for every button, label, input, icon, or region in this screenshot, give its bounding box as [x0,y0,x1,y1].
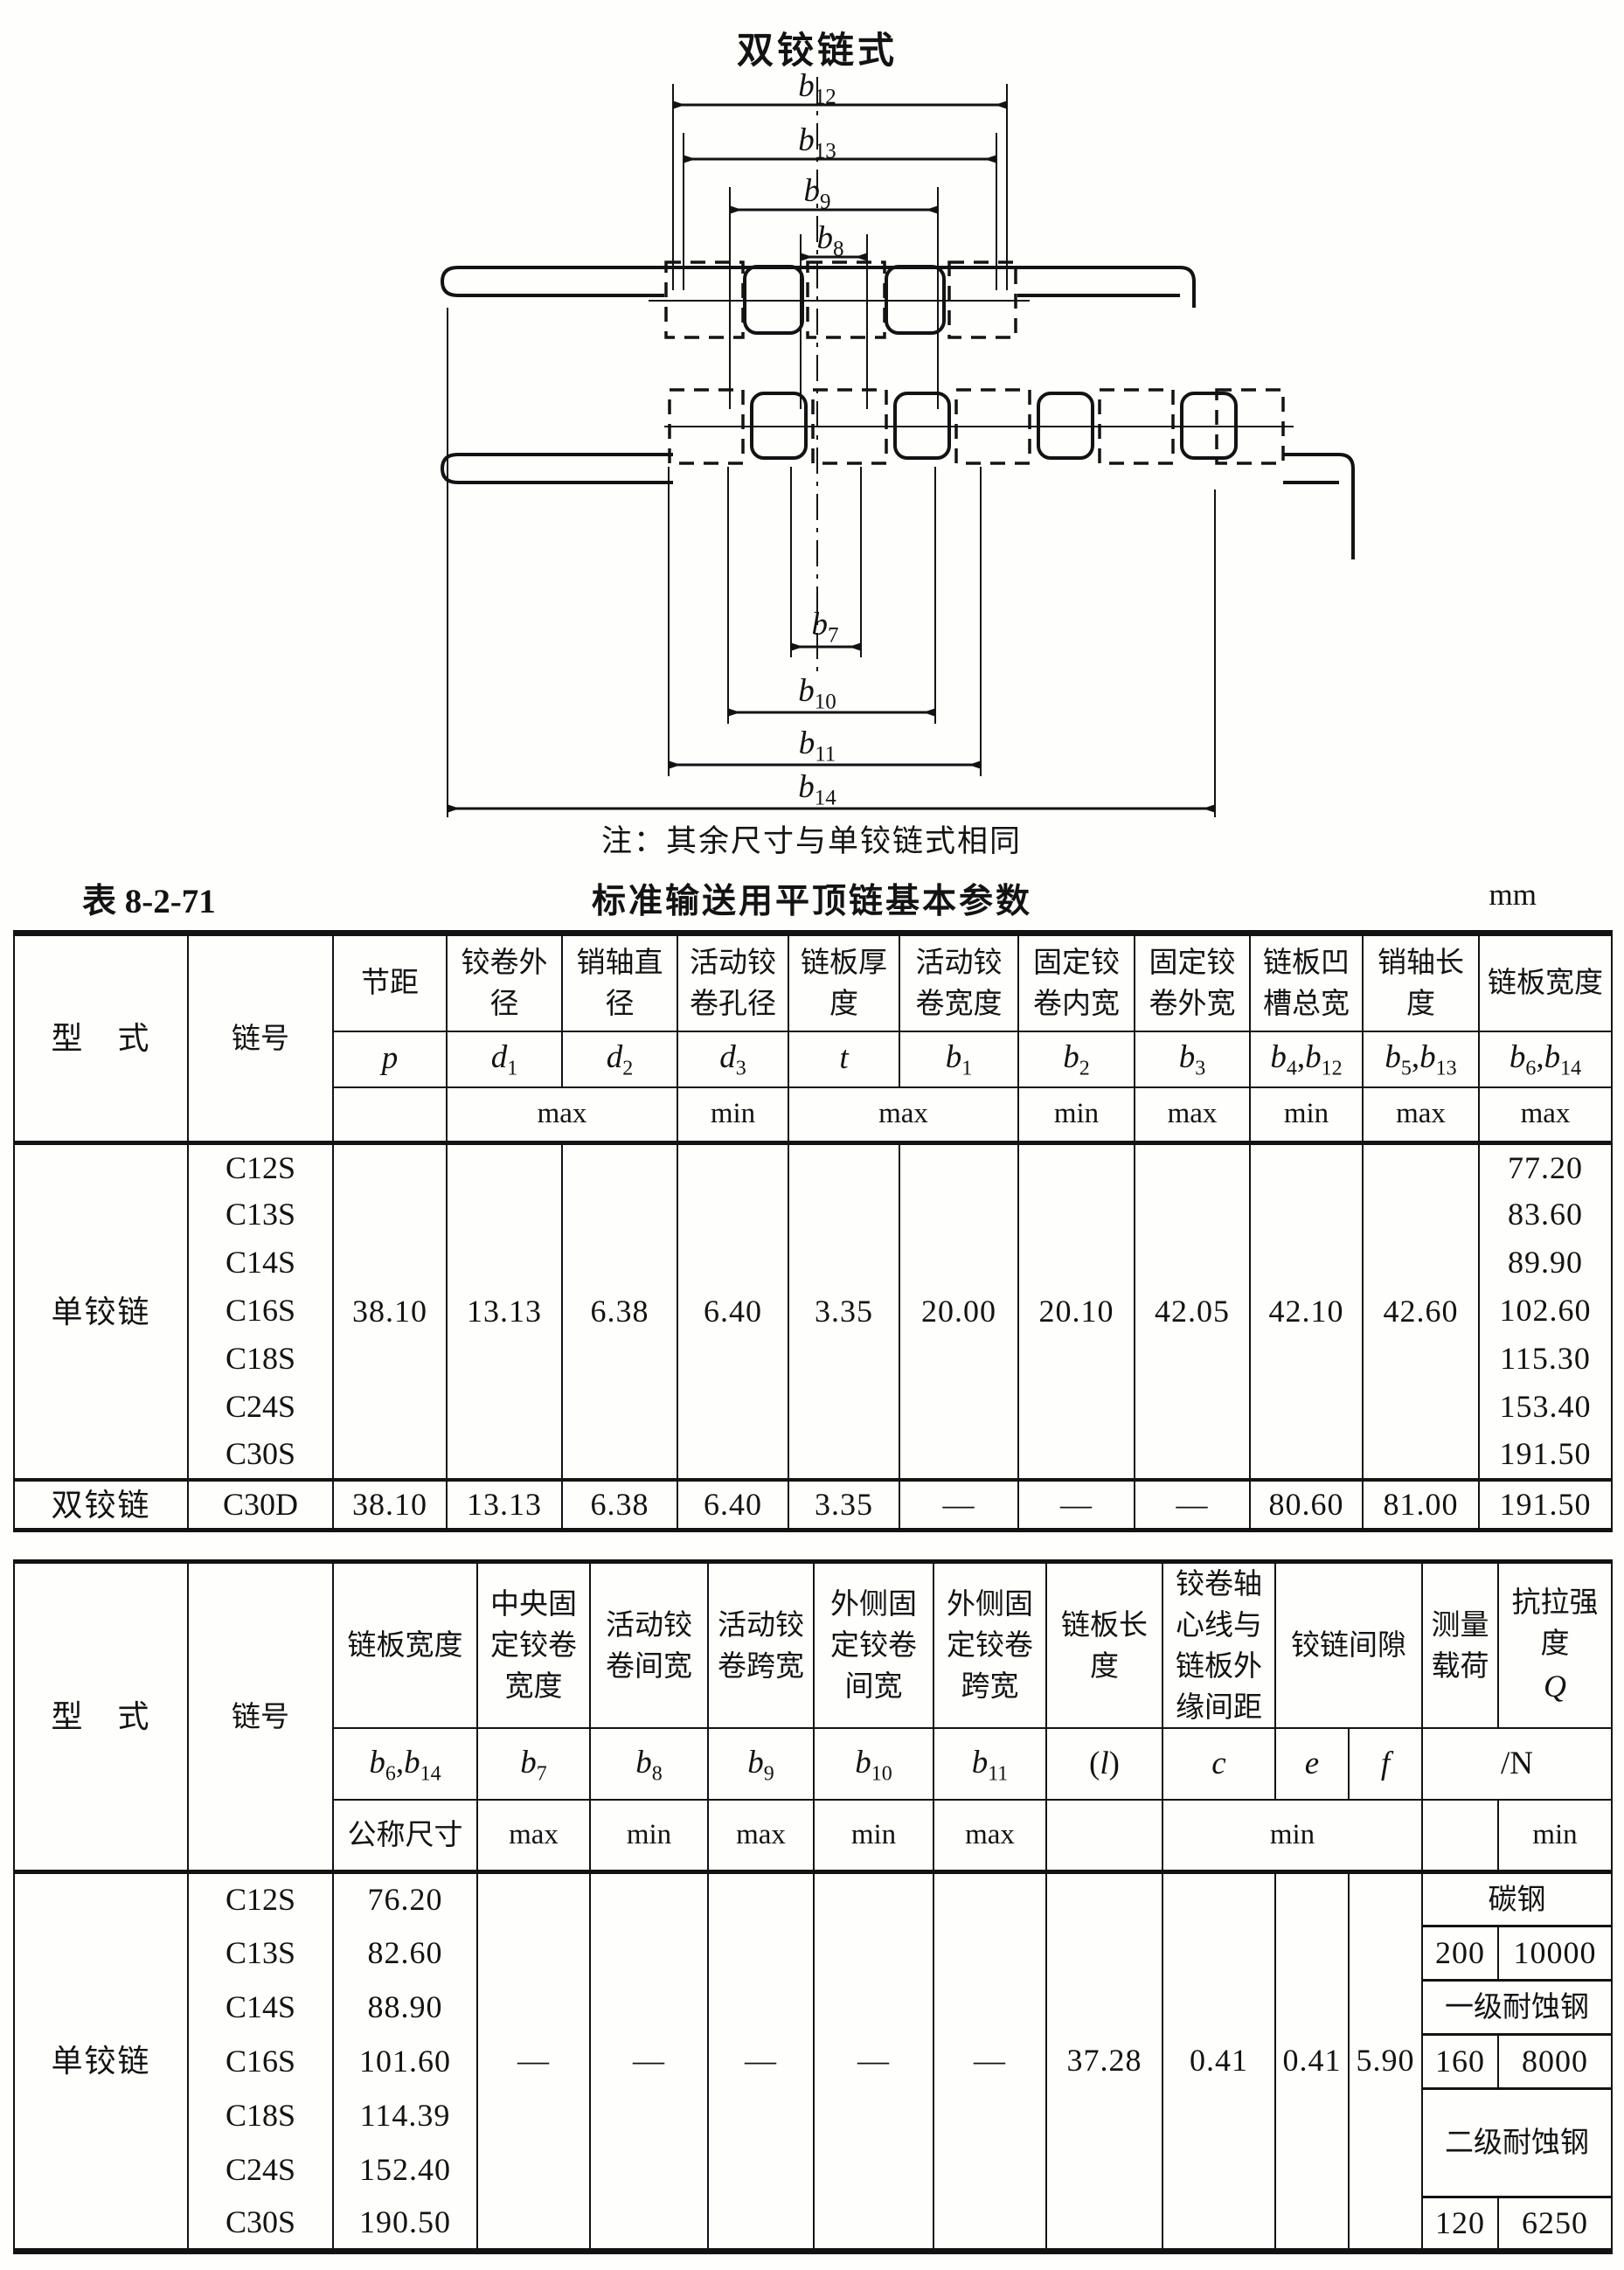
t2-sym-b9: b9 [708,1728,814,1800]
t2-head-outer-fixed-span: 外侧固定铰卷跨宽 [933,1562,1046,1729]
t1-d-p: 38.10 [333,1480,447,1531]
t1-sym-p: p [333,1031,447,1087]
t2-load-carbon: 200 [1422,1926,1498,1980]
t1-lim-p [333,1087,447,1143]
t2-q-carbon: 10000 [1498,1926,1612,1980]
t1-d-d3: 6.40 [677,1480,788,1531]
dim-label-b7: b7 [812,608,839,646]
t1-head-pitch: 节距 [333,934,447,1031]
figure-note: 注：其余尺寸与单铰链式相同 [601,816,1022,861]
t2-load-grade1: 160 [1422,2034,1498,2088]
t2-head-chainno: 链号 [188,1562,333,1872]
dim-label-b14: b14 [798,771,836,809]
t2-val-w: 101.60 [333,2034,477,2088]
t2-lim-b9: max [708,1800,814,1871]
t1-chainno: C12S [188,1143,333,1191]
t2-type-single: 单铰链 [14,1871,188,2251]
t1-d-b4b12: 80.60 [1250,1480,1363,1531]
t2-chainno: C12S [188,1871,333,1926]
t1-val-b4b12: 42.10 [1250,1143,1363,1480]
t2-val-w: 88.90 [333,1980,477,2034]
t1-d-b5b13: 81.00 [1363,1480,1479,1531]
table-unit: mm [1489,878,1537,913]
t1-sym-b1: b1 [899,1031,1018,1087]
t2-sym-c: c [1162,1728,1275,1800]
t2-head-type: 型 式 [14,1562,188,1872]
t2-head-plate-length: 链板长度 [1046,1562,1162,1729]
t1-lim-b2: min [1018,1087,1135,1143]
t1-head-type: 型 式 [14,934,188,1143]
t2-head-free-span: 活动铰卷跨宽 [708,1562,814,1729]
t2-head-outer-fixed-gap: 外侧固定铰卷间宽 [814,1562,933,1729]
t1-head-fixed-knuckle-inner: 固定铰卷内宽 [1018,934,1135,1031]
dim-label-b8: b8 [817,222,844,260]
table2-width-params: 型 式 链号 链板宽度 中央固定铰卷宽度 活动铰卷间宽 活动铰卷跨宽 外侧固定铰… [13,1559,1613,2254]
t1-val-w: 115.30 [1479,1336,1612,1384]
t1-val-w: 153.40 [1479,1384,1612,1432]
t1-sym-b3: b3 [1135,1031,1250,1087]
t2-lim-nominal: 公称尺寸 [333,1800,477,1871]
t1-d-b6b14: 191.50 [1479,1480,1612,1531]
t2-val-l: 37.28 [1046,1871,1162,2251]
table1-basic-params: 型 式 链号 节距 铰卷外径 销轴直径 活动铰卷孔径 链板厚度 活动铰卷宽度 固… [13,930,1613,1532]
handbook-page: 双铰链式 b12 b13 b9 b8 b7 b10 b11 b14 注：其余尺寸… [0,0,1624,2270]
dim-label-b9: b9 [804,175,831,212]
t1-chainno: C16S [188,1288,333,1336]
t1-sym-d1: d1 [447,1031,562,1087]
t1-sym-b5b13: b5,b13 [1363,1031,1479,1087]
t2-q-grade2: 6250 [1498,2197,1612,2251]
t2-val-w: 76.20 [333,1871,477,1926]
t2-steel-grade1: 一级耐蚀钢 [1422,1980,1612,2034]
t1-sym-t: t [788,1031,899,1087]
t1-head-plate-thickness: 链板厚度 [788,934,899,1031]
t2-chainno: C24S [188,2142,333,2197]
t1-lim-tb1: max [788,1087,1018,1143]
t2-lim-b10: min [814,1800,933,1871]
t2-val-f: 5.90 [1349,1871,1422,2251]
t1-lim-d3: min [677,1087,788,1143]
t1-lim-b6b14: max [1479,1087,1612,1143]
t1-val-t: 3.35 [788,1143,899,1480]
t2-chainno: C30S [188,2197,333,2251]
t2-val-w: 190.50 [333,2197,477,2251]
t1-val-d1: 13.13 [447,1143,562,1480]
t1-head-free-knuckle-width: 活动铰卷宽度 [899,934,1018,1031]
t2-chainno: C18S [188,2088,333,2142]
t1-type-single: 单铰链 [14,1143,188,1480]
t1-val-w: 191.50 [1479,1432,1612,1480]
t1-sym-b6b14: b6,b14 [1479,1031,1612,1087]
t2-val-b9: — [708,1871,814,2251]
t2-val-w: 152.40 [333,2142,477,2197]
t2-head-free-gap: 活动铰卷间宽 [590,1562,708,1729]
t1-head-free-knuckle-bore: 活动铰卷孔径 [677,934,788,1031]
dim-label-b12: b12 [798,70,836,108]
t1-sym-d2: d2 [562,1031,677,1087]
t2-load-grade2: 120 [1422,2197,1498,2251]
t1-head-chainno: 链号 [188,934,333,1143]
t1-val-b1: 20.00 [899,1143,1018,1480]
chain-diagram: 双铰链式 b12 b13 b9 b8 b7 b10 b11 b14 注：其余尺寸… [0,0,1624,870]
t1-val-w: 83.60 [1479,1191,1612,1239]
t2-lim-cef: min [1162,1800,1422,1871]
t2-sym-b10: b10 [814,1728,933,1800]
t1-chainno: C24S [188,1384,333,1432]
t2-q-grade1: 8000 [1498,2034,1612,2088]
t1-val-d2: 6.38 [562,1143,677,1480]
t1-head-pin-length: 销轴长度 [1363,934,1479,1031]
t1-val-b2: 20.10 [1018,1143,1135,1480]
t2-lim-b7: max [477,1800,590,1871]
t1-chainno: C30D [188,1480,333,1531]
figure-title: 双铰链式 [737,21,898,74]
t2-lim-b8: min [590,1800,708,1871]
table-caption: 表 8-2-71 标准输送用平顶链基本参数 mm [0,871,1624,920]
t2-sym-newton: /N [1422,1728,1612,1800]
t1-d-b2: — [1018,1480,1135,1531]
t2-val-b8: — [590,1871,708,2251]
t2-sym-e: e [1275,1728,1349,1800]
t1-sym-b2: b2 [1018,1031,1135,1087]
t1-val-b3: 42.05 [1135,1143,1250,1480]
t2-sym-b11: b11 [933,1728,1046,1800]
t2-head-axis-edge-dist: 铰卷轴心线与链板外缘间距 [1162,1562,1275,1729]
t1-sym-d3: d3 [677,1031,788,1087]
t2-chainno: C13S [188,1926,333,1980]
t1-val-d3: 6.40 [677,1143,788,1480]
t2-sym-b8: b8 [590,1728,708,1800]
t2-val-b11: — [933,1871,1046,2251]
t1-chainno: C30S [188,1432,333,1480]
t2-lim-load [1422,1800,1498,1871]
dim-label-b11: b11 [799,727,836,765]
t2-steel-grade2: 二级耐蚀钢 [1422,2088,1612,2197]
t2-val-b10: — [814,1871,933,2251]
t1-val-w: 89.90 [1479,1239,1612,1288]
t1-lim-d1d2: max [447,1087,677,1143]
t2-lim-q: min [1498,1800,1612,1871]
dim-label-b13: b13 [798,124,836,162]
t2-head-measure-load: 测量载荷 [1422,1562,1498,1729]
t1-val-w: 102.60 [1479,1288,1612,1336]
t1-lim-b4b12: min [1250,1087,1363,1143]
t1-d-b1: — [899,1480,1018,1531]
t1-chainno: C13S [188,1191,333,1239]
t1-lim-b3: max [1135,1087,1250,1143]
t1-val-w: 77.20 [1479,1143,1612,1191]
t2-val-w: 114.39 [333,2088,477,2142]
table-title: 标准输送用平顶链基本参数 [0,874,1624,923]
t2-sym-l: (l) [1046,1728,1162,1800]
t2-val-b7: — [477,1871,590,2251]
dim-label-b10: b10 [798,675,836,712]
t1-val-b5b13: 42.60 [1363,1143,1479,1480]
t2-val-w: 82.60 [333,1926,477,1980]
t1-d-b3: — [1135,1480,1250,1531]
t2-head-hinge-clearance: 铰链间隙 [1275,1562,1422,1729]
t1-lim-b5b13: max [1363,1087,1479,1143]
t1-head-knuckle-od: 铰卷外径 [447,934,562,1031]
t2-sym-b7: b7 [477,1728,590,1800]
t1-type-double: 双铰链 [14,1480,188,1531]
t1-head-fixed-knuckle-outer: 固定铰卷外宽 [1135,934,1250,1031]
t1-d-d2: 6.38 [562,1480,677,1531]
t1-head-groove-width: 链板凹槽总宽 [1250,934,1363,1031]
t2-sym-f: f [1349,1728,1422,1800]
t2-val-c: 0.41 [1162,1871,1275,2251]
t2-head-tensile: 抗拉强度Q [1498,1562,1612,1729]
t2-head-central-fixed-width: 中央固定铰卷宽度 [477,1562,590,1729]
t1-d-t: 3.35 [788,1480,899,1531]
t2-val-e: 0.41 [1275,1871,1349,2251]
t1-val-p: 38.10 [333,1143,447,1480]
t1-d-d1: 13.13 [447,1480,562,1531]
t1-chainno: C18S [188,1336,333,1384]
t1-head-pin-dia: 销轴直径 [562,934,677,1031]
t2-steel-carbon: 碳钢 [1422,1871,1612,1926]
t2-lim-b11: max [933,1800,1046,1871]
t2-lim-l [1046,1800,1162,1871]
t1-chainno: C14S [188,1239,333,1288]
t2-chainno: C16S [188,2034,333,2088]
t2-sym-b6b14: b6,b14 [333,1728,477,1800]
t2-head-plate-width: 链板宽度 [333,1562,477,1729]
t2-chainno: C14S [188,1980,333,2034]
t1-sym-b4b12: b4,b12 [1250,1031,1363,1087]
t1-head-plate-width: 链板宽度 [1479,934,1612,1031]
